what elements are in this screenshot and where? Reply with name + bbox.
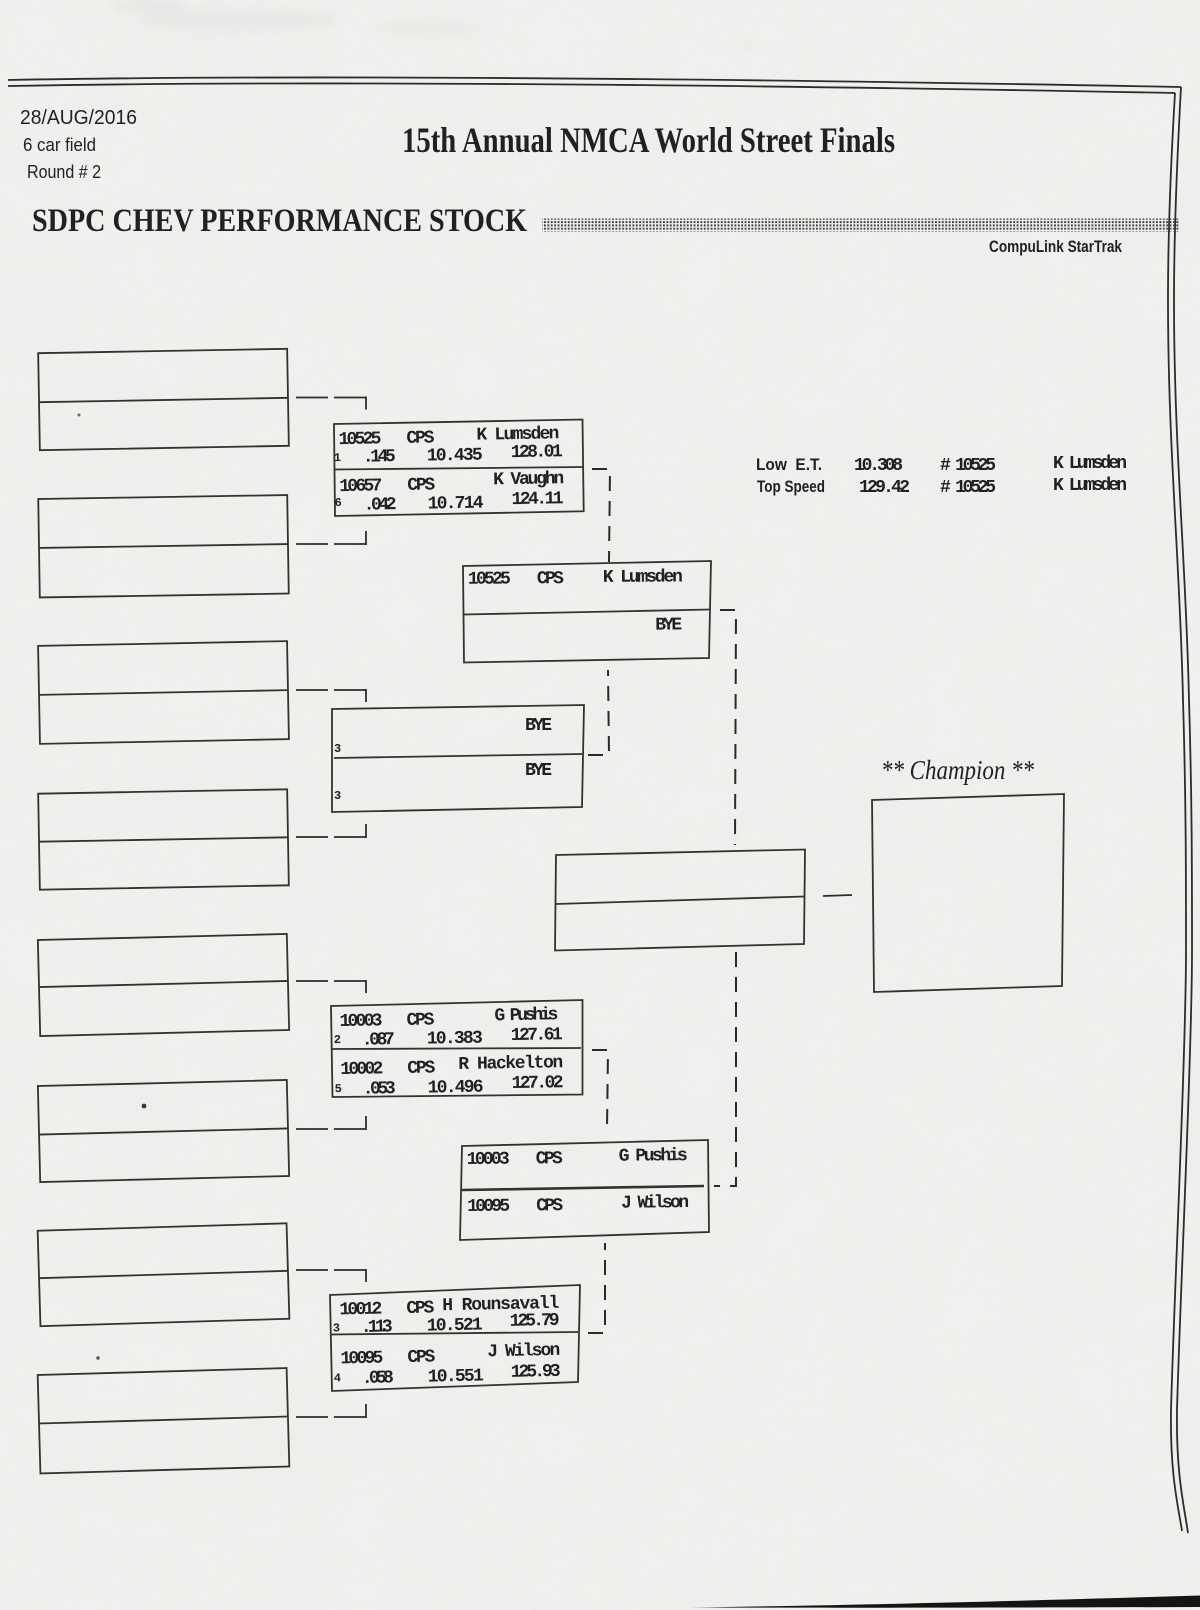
- svg-text:CPS: CPS: [407, 1058, 436, 1078]
- svg-text:Top Speed: Top Speed: [757, 477, 825, 496]
- svg-text:K Lumsden: K Lumsden: [1053, 454, 1127, 474]
- svg-text:.087: .087: [362, 1030, 395, 1051]
- svg-text:3: 3: [333, 1321, 340, 1335]
- svg-text:SDPC CHEV PERFORMANCE STOCK: SDPC CHEV PERFORMANCE STOCK: [32, 203, 527, 239]
- svg-text:4: 4: [334, 1371, 341, 1385]
- svg-text:CPS: CPS: [406, 1010, 435, 1030]
- svg-text:CPS: CPS: [407, 1347, 436, 1368]
- svg-text:K Lumsden: K Lumsden: [603, 567, 683, 587]
- svg-text:CPS: CPS: [536, 1196, 563, 1216]
- svg-text:CPS: CPS: [536, 1149, 563, 1169]
- svg-text:129.42: 129.42: [859, 478, 910, 498]
- svg-text:Low E.T.: Low E.T.: [756, 455, 822, 474]
- svg-text:125.93: 125.93: [511, 1362, 561, 1383]
- svg-text:K Lumsden: K Lumsden: [1053, 476, 1127, 496]
- svg-text:10.521: 10.521: [427, 1315, 484, 1336]
- svg-text:# 10525: # 10525: [940, 456, 996, 476]
- svg-text:10525: 10525: [468, 569, 511, 589]
- svg-text:10.383: 10.383: [427, 1029, 483, 1050]
- svg-text:10.435: 10.435: [427, 446, 483, 467]
- svg-text:10.308: 10.308: [854, 456, 903, 476]
- svg-text:5: 5: [335, 1082, 342, 1096]
- svg-text:BYE: BYE: [525, 716, 552, 736]
- svg-text:10.714: 10.714: [427, 494, 484, 515]
- svg-text:28/AUG/2016: 28/AUG/2016: [20, 107, 137, 129]
- svg-text:CompuLink StarTrak: CompuLink StarTrak: [989, 237, 1122, 256]
- svg-text:10095: 10095: [467, 1197, 510, 1217]
- svg-text:.053: .053: [363, 1079, 396, 1100]
- svg-text:6 car field: 6 car field: [23, 135, 96, 155]
- svg-text:10.496: 10.496: [428, 1078, 484, 1099]
- svg-text:G Pushis: G Pushis: [494, 1005, 558, 1026]
- svg-text:128.01: 128.01: [511, 442, 564, 463]
- svg-text:127.61: 127.61: [511, 1025, 564, 1046]
- svg-text:# 10525: # 10525: [940, 478, 996, 498]
- svg-text:CPS: CPS: [407, 475, 436, 495]
- svg-text:BYE: BYE: [525, 761, 552, 781]
- svg-text:15th Annual NMCA World Street: 15th Annual NMCA World Street Finals: [402, 120, 895, 160]
- svg-text:10657: 10657: [339, 476, 382, 497]
- svg-text:125.79: 125.79: [509, 1311, 559, 1332]
- svg-text:10095: 10095: [340, 1349, 383, 1370]
- svg-text:J Wilson: J Wilson: [487, 1341, 560, 1363]
- svg-text:1: 1: [334, 451, 341, 465]
- svg-text:10002: 10002: [340, 1059, 383, 1080]
- svg-text:6: 6: [334, 496, 341, 510]
- svg-text:2: 2: [334, 1033, 341, 1047]
- svg-text:J Wilson: J Wilson: [621, 1193, 689, 1214]
- svg-text:.113: .113: [361, 1317, 393, 1338]
- svg-text:10003: 10003: [467, 1150, 510, 1170]
- svg-text:CPS: CPS: [537, 569, 564, 589]
- svg-text:BYE: BYE: [655, 615, 682, 635]
- svg-text:10003: 10003: [339, 1011, 382, 1032]
- svg-text:Round # 2: Round # 2: [27, 162, 101, 182]
- svg-text:R Hackelton: R Hackelton: [458, 1053, 563, 1075]
- svg-text:124.11: 124.11: [511, 489, 564, 510]
- svg-text:3: 3: [334, 789, 341, 803]
- svg-text:.058: .058: [362, 1368, 394, 1389]
- svg-text:.145: .145: [363, 447, 396, 468]
- svg-text:127.02: 127.02: [511, 1073, 563, 1094]
- svg-text:G Pushis: G Pushis: [619, 1146, 688, 1167]
- svg-text:K Vaughn: K Vaughn: [493, 469, 564, 490]
- svg-text:3: 3: [334, 742, 341, 756]
- svg-text:** Champion **: ** Champion **: [881, 755, 1034, 785]
- svg-text:.042: .042: [363, 495, 396, 516]
- svg-text:10.551: 10.551: [428, 1366, 485, 1387]
